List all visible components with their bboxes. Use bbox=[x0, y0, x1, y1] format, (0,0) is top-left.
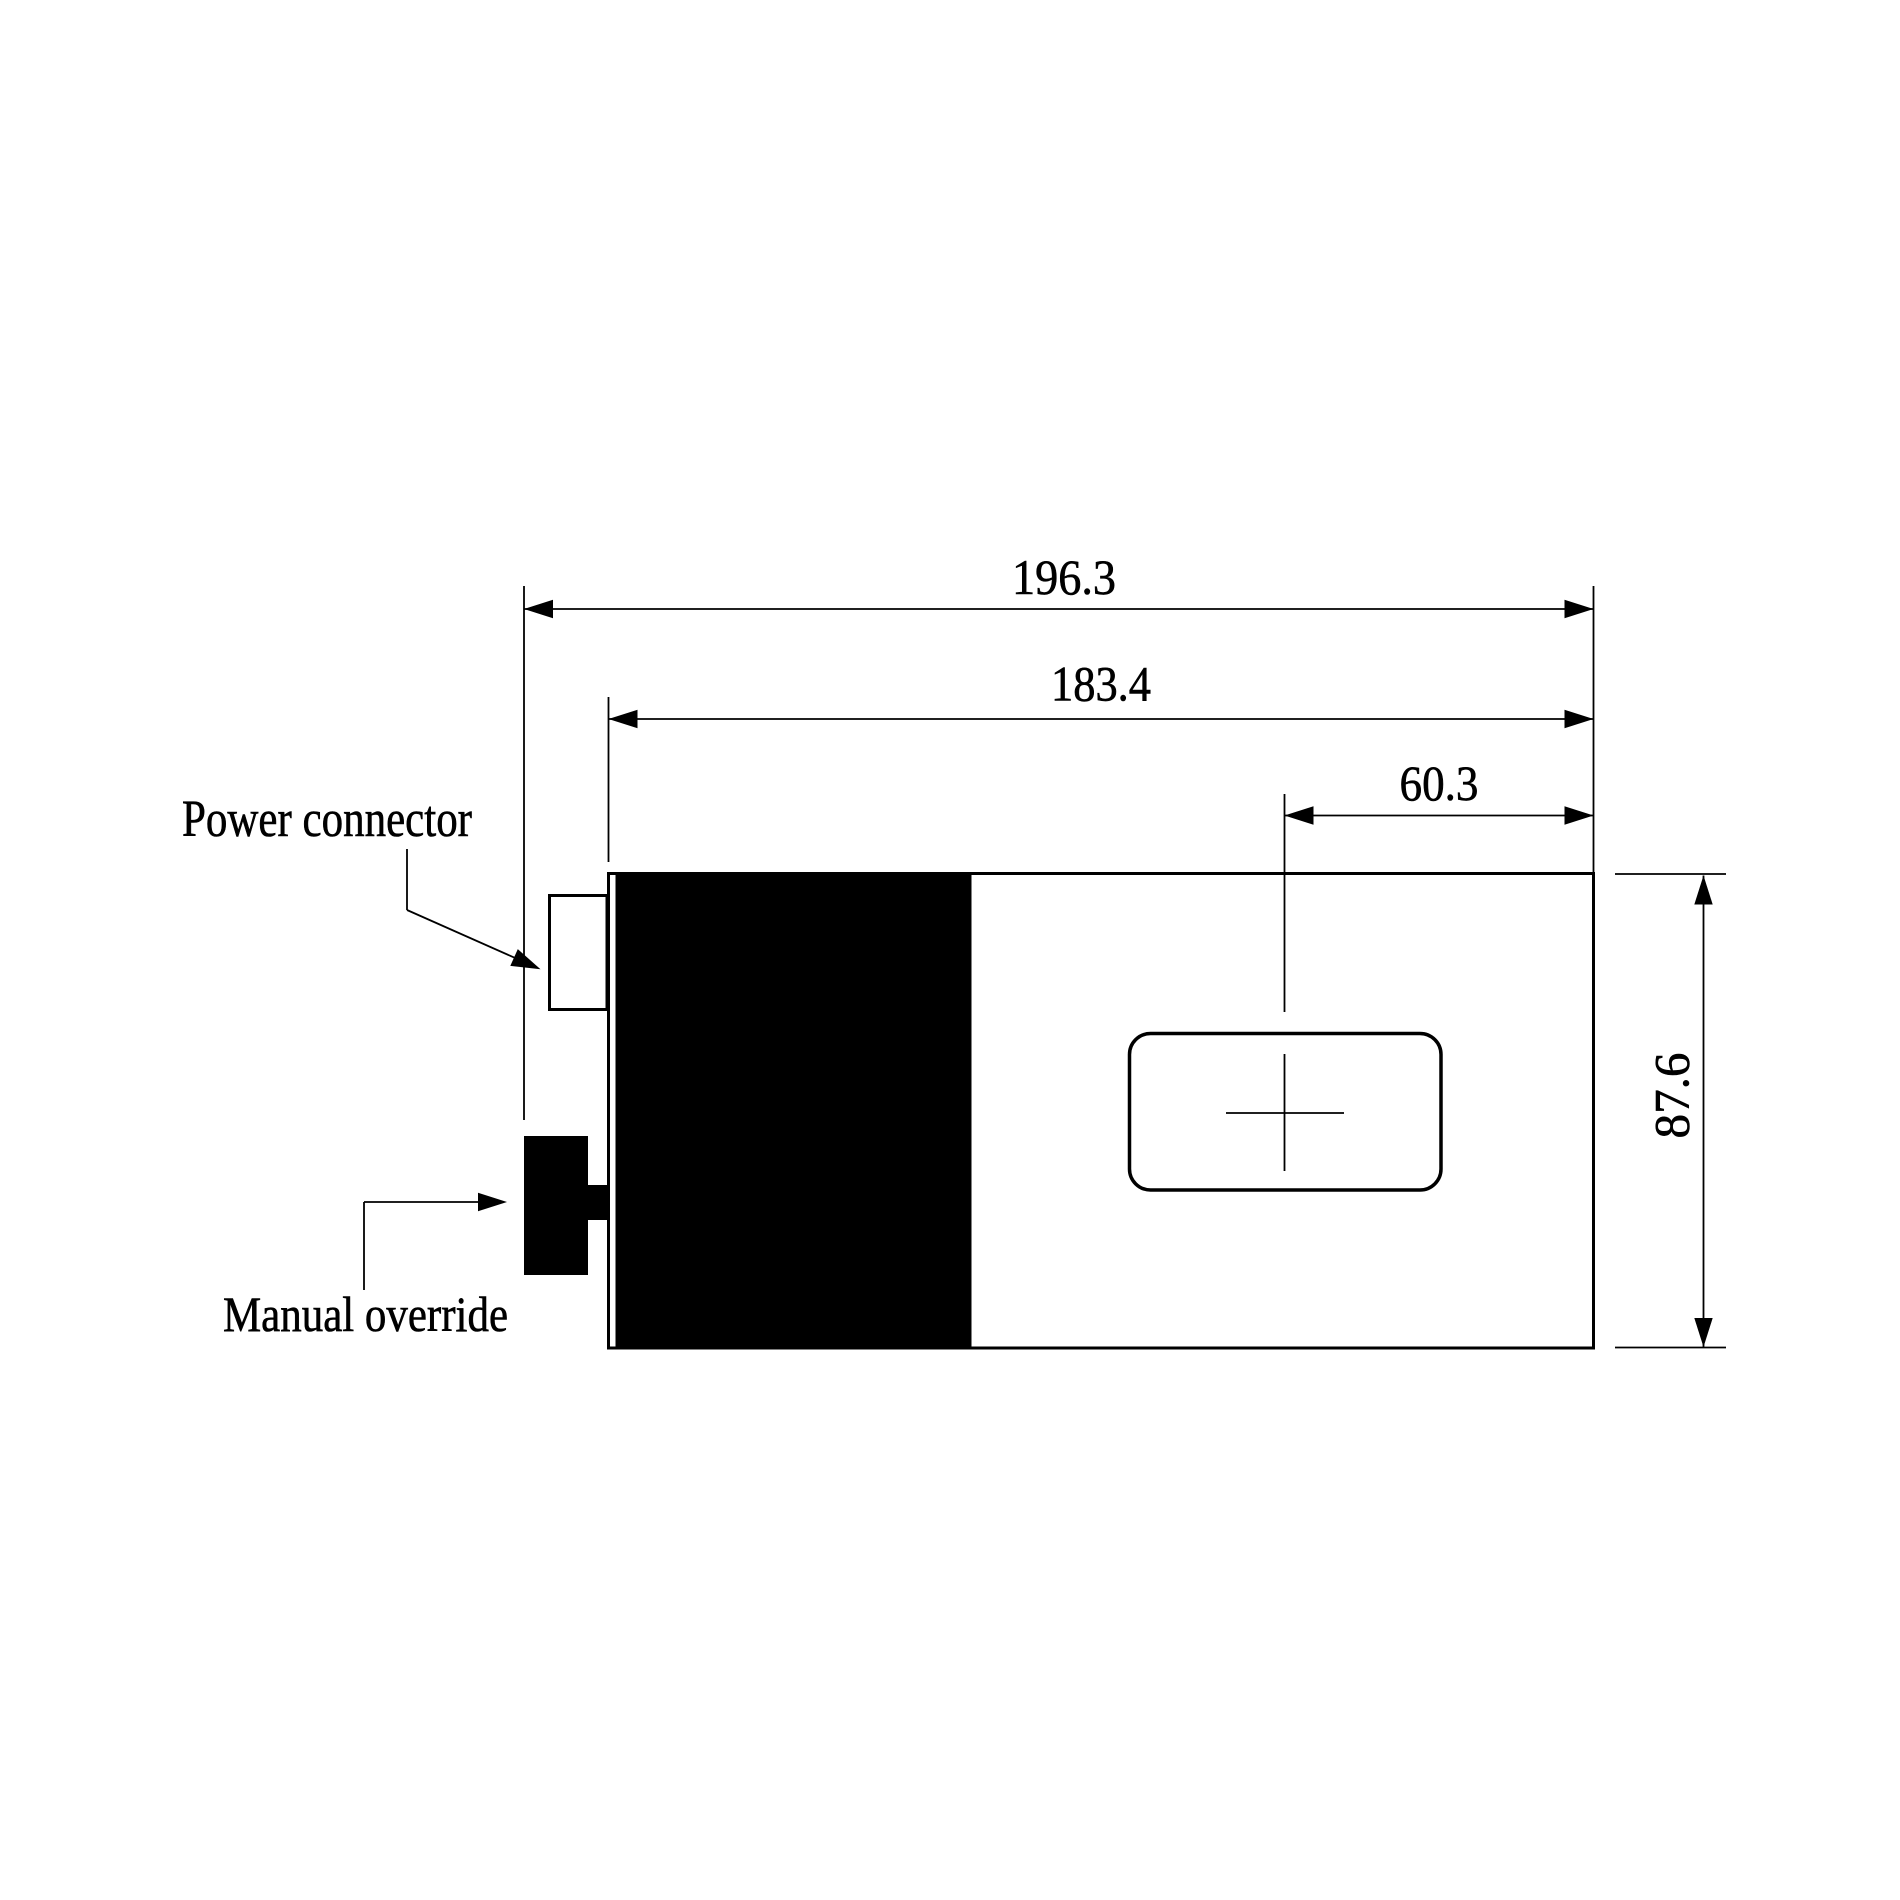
svg-text:183.4: 183.4 bbox=[1051, 656, 1151, 712]
svg-text:87.6: 87.6 bbox=[1644, 1053, 1700, 1139]
svg-text:Power connector: Power connector bbox=[182, 791, 472, 848]
svg-text:60.3: 60.3 bbox=[1400, 755, 1479, 811]
svg-text:Manual override: Manual override bbox=[223, 1286, 508, 1342]
svg-text:196.3: 196.3 bbox=[1012, 549, 1116, 605]
